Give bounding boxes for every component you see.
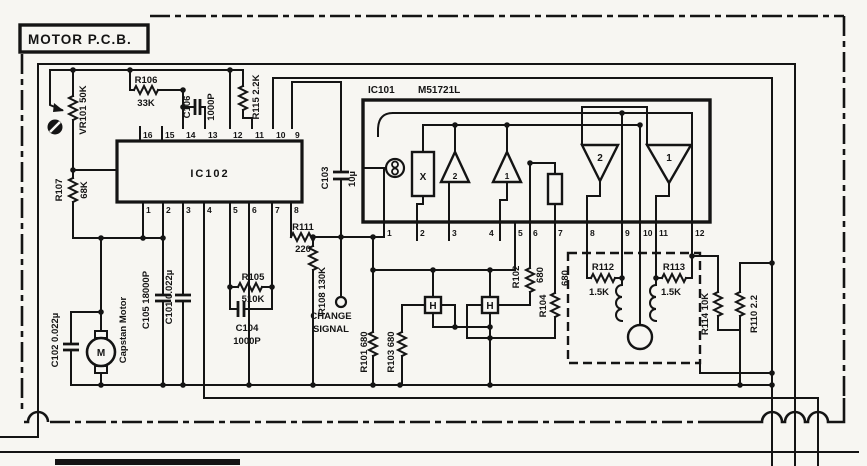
amp-big-1 bbox=[647, 145, 691, 183]
ic102-pin9: 9 bbox=[295, 130, 300, 140]
label-c104-val: 1000P bbox=[233, 336, 261, 347]
ic101-pin6: 6 bbox=[533, 228, 538, 238]
ic102-pin5: 5 bbox=[233, 205, 238, 215]
wiper-arrow bbox=[53, 103, 64, 112]
ic102-pin1: 1 bbox=[146, 205, 151, 215]
label-c101: C101 0.022µ bbox=[164, 270, 175, 325]
label-r102: R102 bbox=[511, 266, 522, 289]
label-ic102: IC102 bbox=[190, 168, 229, 180]
label-r106-val: 33K bbox=[137, 98, 155, 109]
label-r103: R103 680 bbox=[386, 331, 397, 372]
label-hall-1: H bbox=[429, 301, 436, 312]
ic102-pin4: 4 bbox=[207, 205, 212, 215]
label-r110: R110 2.2 bbox=[749, 295, 760, 333]
ic102-pin6: 6 bbox=[252, 205, 257, 215]
ic102-pin15: 15 bbox=[165, 130, 175, 140]
label-hall-2: H bbox=[486, 301, 493, 312]
label-amp-big-1: 1 bbox=[666, 153, 672, 164]
label-c102: C102 0.022µ bbox=[50, 313, 61, 368]
label-r105-val: 510K bbox=[242, 294, 265, 305]
ic102-pin10: 10 bbox=[276, 130, 286, 140]
ic102-pin11: 11 bbox=[255, 130, 264, 140]
cap-c101 bbox=[175, 295, 191, 301]
adjust-screw-icon bbox=[48, 103, 65, 135]
change-signal-terminal bbox=[336, 297, 346, 307]
label-r104-val: 680 bbox=[560, 270, 571, 286]
ic102-pin12: 12 bbox=[233, 130, 243, 140]
label-r111-val: 220 bbox=[295, 244, 311, 255]
label-r113-val: 1.5K bbox=[661, 287, 681, 298]
label-amp-big-2: 2 bbox=[597, 153, 603, 164]
label-c106-val: 1000P bbox=[206, 93, 217, 121]
ic101-pin7: 7 bbox=[558, 228, 563, 238]
ic101-pin8: 8 bbox=[590, 228, 595, 238]
motor-pcb-schematic: MOTOR P.C.B. IC102 IC101 M51721L 16 15 1… bbox=[0, 0, 867, 466]
ic102-pin8: 8 bbox=[294, 205, 299, 215]
cap-c106 bbox=[195, 99, 200, 115]
ic101-pin5: 5 bbox=[518, 228, 523, 238]
ic102-pin2: 2 bbox=[166, 205, 171, 215]
label-c104: C104 bbox=[236, 323, 259, 334]
ic102-pin7: 7 bbox=[275, 205, 280, 215]
page-title: MOTOR P.C.B. bbox=[28, 32, 132, 47]
label-r113: R113 bbox=[663, 262, 685, 273]
ic101-pin4: 4 bbox=[489, 228, 494, 238]
ic101-body bbox=[363, 100, 710, 222]
schematic-canvas: MOTOR P.C.B. IC102 IC101 M51721L 16 15 1… bbox=[0, 0, 867, 466]
circuit-wires bbox=[0, 64, 858, 466]
ic102-pin14: 14 bbox=[186, 130, 196, 140]
ic101-pin9: 9 bbox=[625, 228, 630, 238]
ic102-pin3: 3 bbox=[186, 205, 191, 215]
label-r108: R108 130K bbox=[317, 267, 328, 315]
label-r111: R111 bbox=[292, 222, 314, 233]
label-c106: C106 bbox=[182, 96, 193, 119]
label-ic101-ref: IC101 bbox=[368, 85, 395, 96]
label-r112-val: 1.5K bbox=[589, 287, 609, 298]
cap-c102 bbox=[63, 344, 79, 350]
component-bodies bbox=[87, 100, 710, 373]
label-r112: R112 bbox=[592, 262, 614, 273]
label-r102-val: 680 bbox=[535, 267, 546, 283]
label-ic101-part: M51721L bbox=[418, 85, 460, 96]
ic101-pin10: 10 bbox=[643, 228, 653, 238]
label-change-signal-2: SIGNAL bbox=[313, 324, 349, 335]
label-r104: R104 bbox=[538, 294, 549, 317]
internal-resistor-box bbox=[548, 174, 562, 204]
label-motor-symbol: M bbox=[97, 348, 105, 359]
label-r105: R105 bbox=[242, 272, 265, 283]
ic101-pin12: 12 bbox=[695, 228, 705, 238]
label-c103: C103 bbox=[320, 167, 331, 190]
label-mixer: X bbox=[420, 172, 427, 183]
label-amp-small-2: 2 bbox=[453, 171, 458, 181]
label-c105: C105 18000P bbox=[141, 270, 152, 329]
label-change-signal-1: CHANGE bbox=[310, 311, 351, 322]
label-vr101: VR101 50K bbox=[78, 85, 89, 134]
label-r115: R115 2.2K bbox=[251, 74, 262, 119]
label-c103-val: 10µ bbox=[347, 171, 358, 187]
label-amp-small-1: 1 bbox=[505, 171, 510, 181]
ic101-pin11: 11 bbox=[659, 228, 668, 238]
label-r114: R114 10K bbox=[700, 293, 711, 335]
label-r107: R107 bbox=[54, 179, 65, 202]
ic102-pin16: 16 bbox=[143, 130, 153, 140]
ic101-pin2: 2 bbox=[420, 228, 425, 238]
label-r107-val: 68K bbox=[79, 181, 90, 199]
label-r101: R101 680 bbox=[359, 331, 370, 372]
rotor-symbol bbox=[628, 325, 652, 349]
label-motor: Capstan Motor bbox=[118, 296, 129, 363]
ic102-pin13: 13 bbox=[208, 130, 218, 140]
label-r106: R106 bbox=[135, 75, 158, 86]
ic101-pin3: 3 bbox=[452, 228, 457, 238]
ic101-pin1: 1 bbox=[387, 228, 392, 238]
